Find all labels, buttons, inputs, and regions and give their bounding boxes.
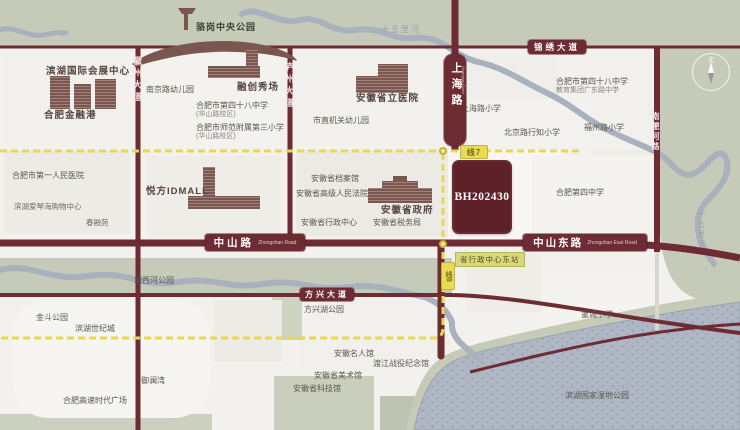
road-label-jinxiu-avenue: 锦绣大道 <box>528 40 586 54</box>
poi-label: 骆岗中央公园 <box>196 22 256 33</box>
poi-label: 董城小学 <box>581 310 613 320</box>
poi-label: 滨湖世纪城 <box>75 324 115 334</box>
poi-gov: 安徽省美术馆 <box>314 371 362 381</box>
road-label-luzhou-avenue: 庐州大道 <box>283 62 296 110</box>
poi-label: 合肥市师范附属第三小学 <box>196 123 284 133</box>
road-name: 方兴大道 <box>305 289 349 300</box>
poi-label: 滨湖爱琴海购物中心 <box>14 202 82 211</box>
poi-label: 市直机关幼儿园 <box>313 116 369 126</box>
road-name-en: Shanghai Road <box>461 66 466 94</box>
poi-label: 十五里河 <box>696 210 706 250</box>
poi-label: 金斗公园 <box>36 313 68 323</box>
poi-label: 御澜湾 <box>141 376 165 386</box>
road-label-huizhou-avenue: 徽州大道 <box>131 56 144 104</box>
poi-label: 塘西河公园 <box>134 276 174 286</box>
road-name-en: Zhongshan Road <box>258 240 296 246</box>
poi-label: 合肥市第一人民医院 <box>12 171 84 181</box>
poi-label: 方兴湖公园 <box>304 305 344 315</box>
poi-gov: 安徽省行政中心 <box>301 218 357 228</box>
poi-label: 北京路行知小学 <box>504 128 560 138</box>
poi-park: 塘西河公园 <box>134 276 174 286</box>
metro-line8-badge: 线8 <box>441 262 455 290</box>
poi-label-line2: (华山路校区) <box>196 111 268 119</box>
poi-label: 安徽省美术馆 <box>314 371 362 381</box>
poi-label: 合肥金融港 <box>44 110 97 121</box>
poi-label: 合肥第四中学 <box>556 188 604 198</box>
poi-label: 安徽省政府 <box>381 205 434 216</box>
poi-label: 春融苑 <box>86 218 109 227</box>
poi-gov: 安徽省档案馆 <box>311 174 359 184</box>
poi-label: 滨湖国际会展中心 <box>46 66 130 77</box>
road-label-nanfeihe-road: 南淝河路 <box>650 112 661 152</box>
poi-school: 合肥第四中学 <box>556 188 604 198</box>
map-canvas: 骆岗中央公园滨湖国际会展中心合肥金融港南京路幼儿园融创秀场合肥市第四十八中学(华… <box>0 0 740 430</box>
poi-label: 合肥市第四十八中学 <box>556 77 628 87</box>
poi-res: 合肥高速时代广场 <box>63 396 127 406</box>
poi-layer: 骆岗中央公园滨湖国际会展中心合肥金融港南京路幼儿园融创秀场合肥市第四十八中学(华… <box>0 0 740 430</box>
poi-school: 合肥市第四十八中学(华山路校区) <box>196 101 268 119</box>
road-name-en: Zhongshan East Road <box>587 240 637 246</box>
road-plaque-shanghai-road: 上海路 Shanghai Road <box>444 54 466 146</box>
plot-block-bh202430: BH202430 <box>452 160 512 234</box>
poi-park: 滨湖国家湿地公园 <box>565 391 629 401</box>
poi-school: 合肥市第四十八中学教育集团广东路中学 <box>556 77 628 95</box>
poi-school: 市直机关幼儿园 <box>313 116 369 126</box>
poi-label: 十五里河 <box>381 25 421 35</box>
road-label-fangxing-avenue: 方兴大道 <box>300 288 354 301</box>
poi-label: 滨湖爱琴海购物中心 <box>14 202 82 211</box>
poi-label: 融创秀场 <box>237 82 279 93</box>
poi-label: 合肥金融港 <box>44 110 97 121</box>
poi-label: 融创秀场 <box>237 82 279 93</box>
poi-label: 安徽省档案馆 <box>311 174 359 184</box>
poi-label-line2: 教育集团广东路中学 <box>556 87 628 95</box>
poi-label: 渡江战役纪念馆 <box>373 359 429 369</box>
poi-label: 上海路小学 <box>461 104 501 114</box>
poi-park: 金斗公园 <box>36 313 68 323</box>
poi-label: 安徽名人馆 <box>334 349 374 359</box>
poi-label: 十五里河 <box>696 210 706 250</box>
poi-school: 福州路小学 <box>584 123 624 133</box>
poi-label: 安徽省政府 <box>381 205 434 216</box>
poi-label: 安徽省立医院 <box>356 93 419 104</box>
road-label-zhongshan-road: 中山路 Zhongshan Road <box>205 234 305 251</box>
metro-station-label: 省行政中心东站 <box>455 252 525 267</box>
poi-label: 安徽省高级人民法院 <box>296 189 368 199</box>
road-name: 锦绣大道 <box>534 41 580 53</box>
poi-label: 安徽省行政中心 <box>301 218 357 228</box>
poi-label: 南京路幼儿园 <box>146 85 194 95</box>
poi-label: 十五里河 <box>381 25 421 35</box>
poi-school: 上海路小学 <box>461 104 501 114</box>
poi-label: 滨湖国际会展中心 <box>46 66 130 77</box>
poi-label: 合肥市第四十八中学 <box>196 101 268 111</box>
poi-park: 方兴湖公园 <box>304 305 344 315</box>
poi-label: 滨湖国家湿地公园 <box>565 391 629 401</box>
poi-label: 春融苑 <box>86 218 109 227</box>
poi-label: 福州路小学 <box>584 123 624 133</box>
poi-gov: 安徽省科技馆 <box>293 384 341 394</box>
poi-label: 骆岗中央公园 <box>196 22 256 33</box>
poi-gov: 安徽省税务局 <box>373 218 421 228</box>
poi-label: 安徽省科技馆 <box>293 384 341 394</box>
poi-label-line2: (华山路校区) <box>196 133 284 141</box>
poi-school: 合肥市师范附属第三小学(华山路校区) <box>196 123 284 141</box>
poi-res: 滨湖世纪城 <box>75 324 115 334</box>
poi-label: 悦方IDMALL <box>146 186 209 197</box>
poi-label: 悦方IDMALL <box>146 186 209 197</box>
road-label-zhongshan-east-road: 中山东路 Zhongshan East Road <box>523 234 647 251</box>
poi-school: 董城小学 <box>581 310 613 320</box>
poi-school: 合肥市第一人民医院 <box>12 171 84 181</box>
road-name: 中山路 <box>214 235 255 250</box>
poi-label: 合肥高速时代广场 <box>63 396 127 406</box>
poi-gov: 安徽省高级人民法院 <box>296 189 368 199</box>
metro-station-dot <box>439 240 447 248</box>
poi-gov: 渡江战役纪念馆 <box>373 359 429 369</box>
metro-interchange-dot <box>439 147 447 155</box>
poi-label: 安徽省税务局 <box>373 218 421 228</box>
poi-label: 安徽省立医院 <box>356 93 419 104</box>
metro-line7-badge: 线7 <box>460 145 488 159</box>
poi-school: 南京路幼儿园 <box>146 85 194 95</box>
road-name: 中山东路 <box>533 235 583 250</box>
poi-gov: 安徽名人馆 <box>334 349 374 359</box>
poi-school: 北京路行知小学 <box>504 128 560 138</box>
poi-res: 御澜湾 <box>141 376 165 386</box>
